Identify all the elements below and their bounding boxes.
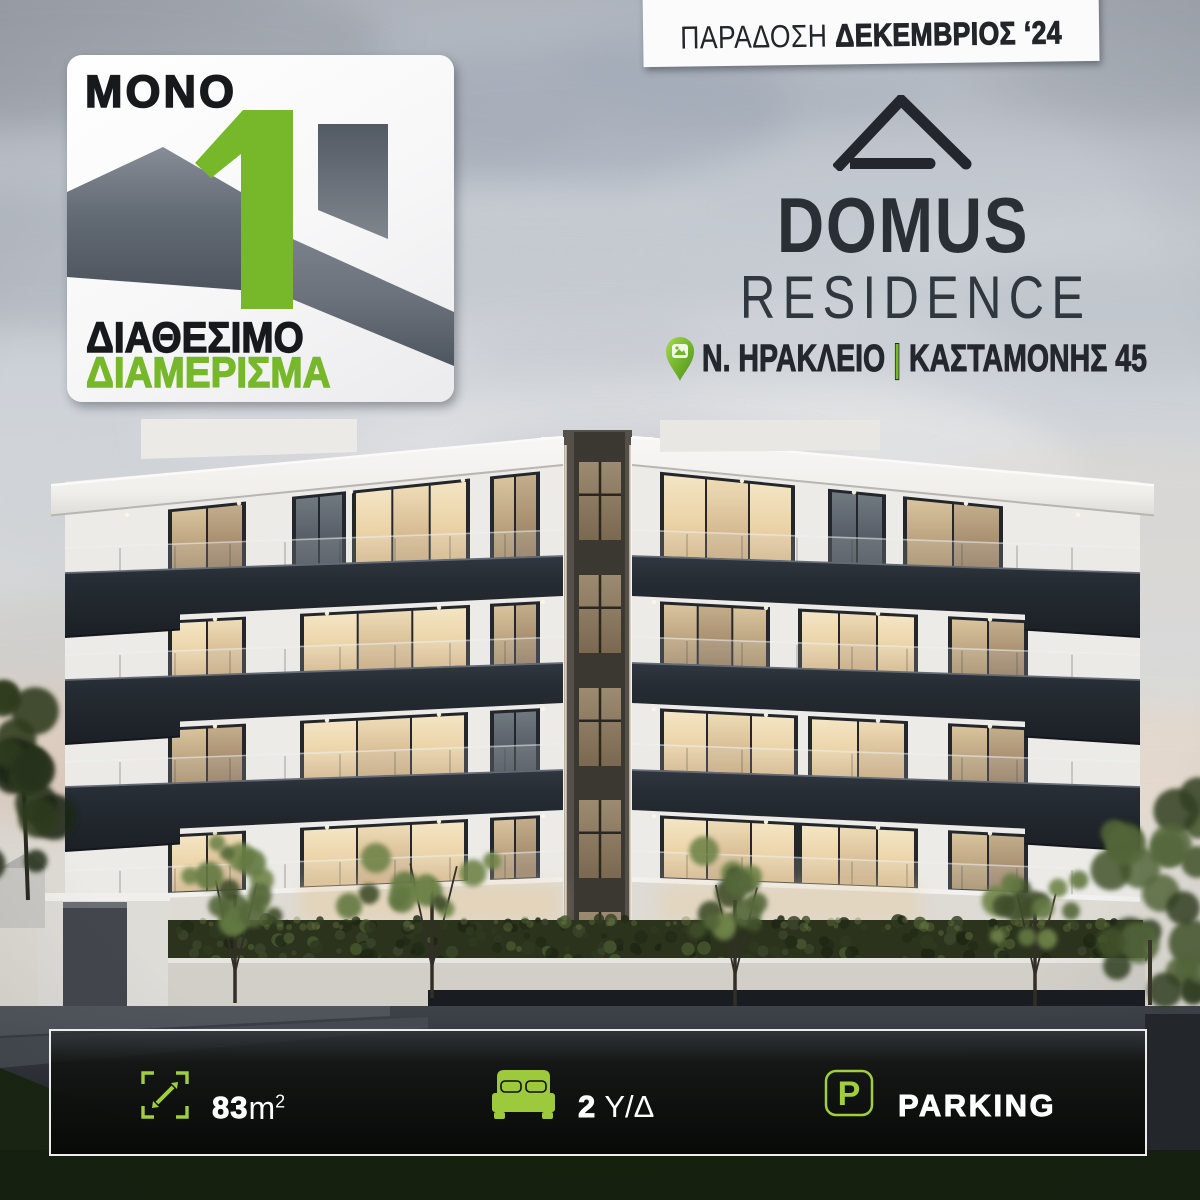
svg-text:P: P — [838, 1075, 861, 1113]
